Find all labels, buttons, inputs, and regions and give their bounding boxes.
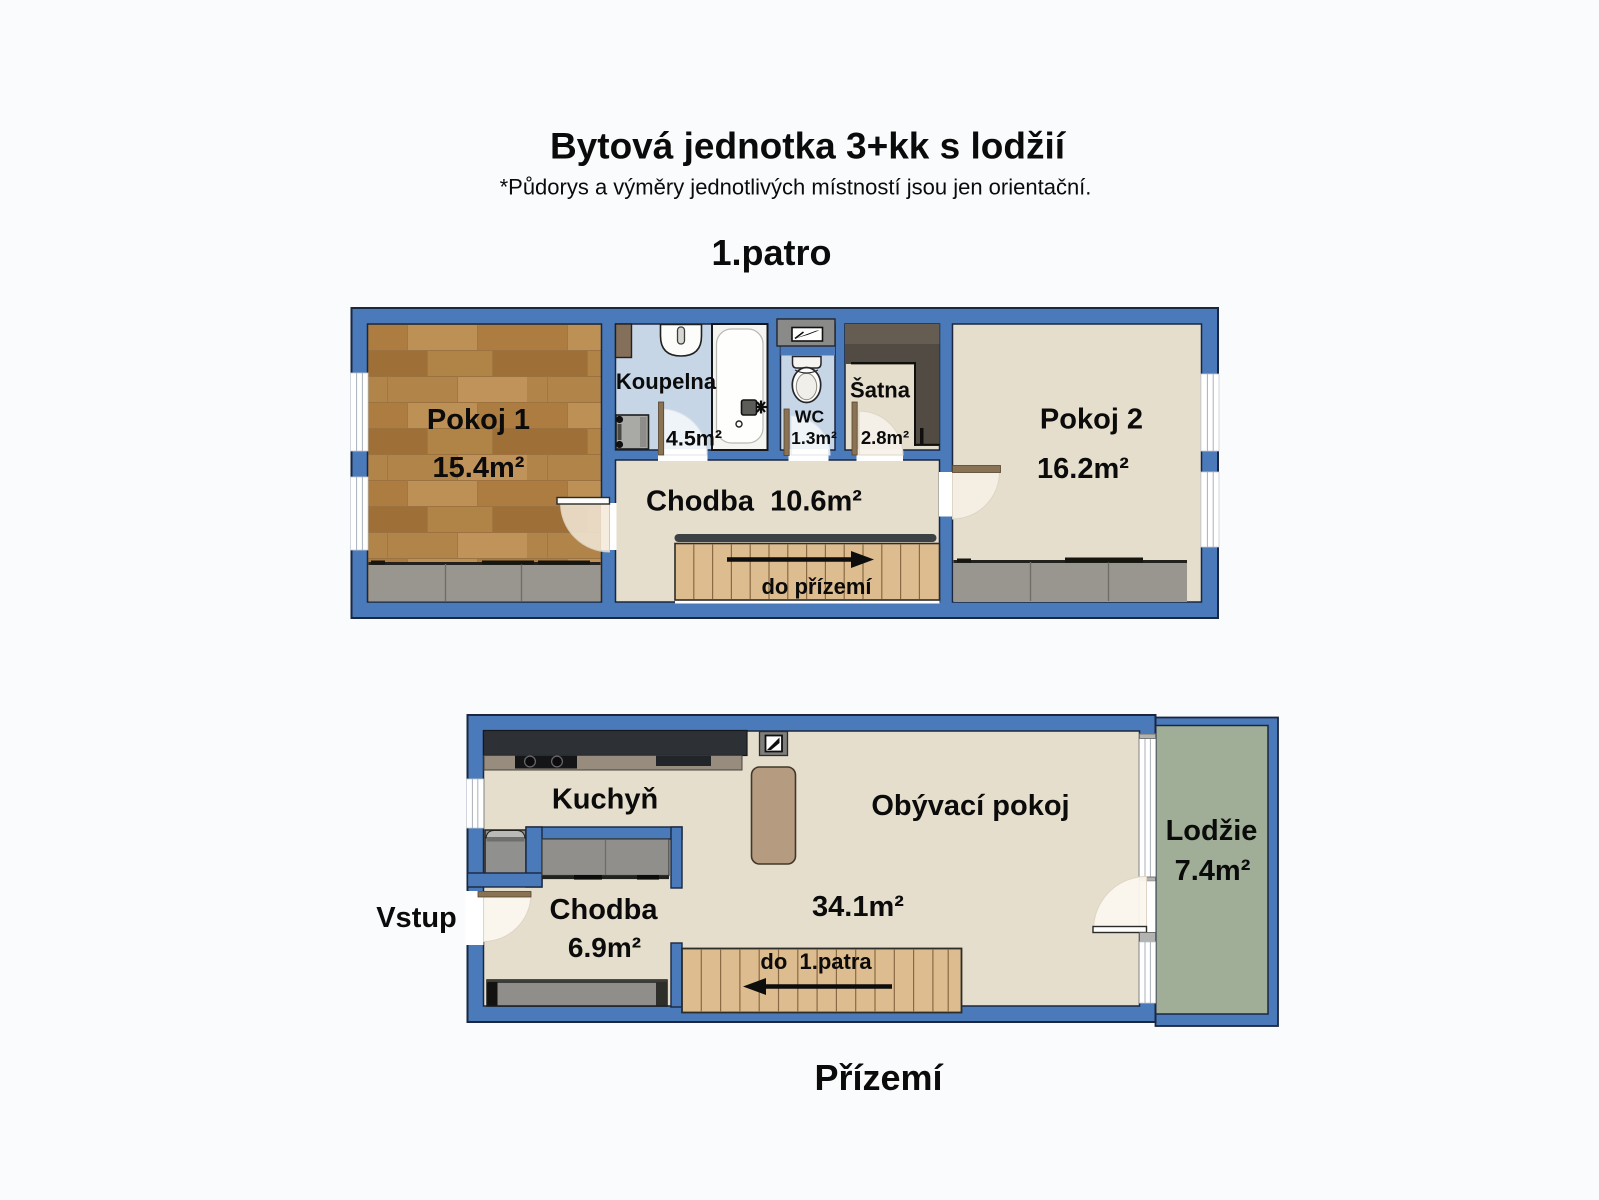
svg-text:Obývací pokoj: Obývací pokoj bbox=[871, 790, 1069, 822]
svg-text:4.5m²: 4.5m² bbox=[666, 427, 722, 451]
svg-text:Vstup: Vstup bbox=[376, 902, 457, 934]
svg-text:1.3m²: 1.3m² bbox=[791, 428, 837, 448]
svg-text:Bytová jednotka 3+kk s lodžií: Bytová jednotka 3+kk s lodžií bbox=[550, 126, 1067, 167]
svg-text:2.8m²: 2.8m² bbox=[861, 427, 909, 448]
svg-text:7.4m²: 7.4m² bbox=[1175, 855, 1251, 887]
svg-text:Přízemí: Přízemí bbox=[814, 1057, 943, 1098]
svg-text:16.2m²: 16.2m² bbox=[1037, 453, 1129, 485]
svg-text:Pokoj 1: Pokoj 1 bbox=[427, 404, 530, 436]
svg-text:Chodba: Chodba bbox=[550, 894, 659, 926]
svg-text:15.4m²: 15.4m² bbox=[433, 452, 525, 484]
svg-text:do přízemí: do přízemí bbox=[761, 574, 872, 599]
svg-text:WC: WC bbox=[795, 407, 825, 427]
svg-text:Kuchyň: Kuchyň bbox=[552, 784, 658, 816]
svg-text:6.9m²: 6.9m² bbox=[568, 932, 641, 963]
svg-text:do 1.patra: do 1.patra bbox=[760, 949, 872, 974]
svg-text:Pokoj 2: Pokoj 2 bbox=[1040, 404, 1143, 436]
svg-text:Lodžie: Lodžie bbox=[1166, 815, 1258, 847]
svg-text:34.1m²: 34.1m² bbox=[812, 891, 904, 923]
svg-text:1.patro: 1.patro bbox=[711, 232, 831, 273]
svg-text:Chodba 10.6m²: Chodba 10.6m² bbox=[646, 486, 862, 518]
svg-text:*Půdorys a výměry jednotlivých: *Půdorys a výměry jednotlivých místností… bbox=[500, 174, 1092, 199]
svg-text:Šatna: Šatna bbox=[850, 378, 911, 403]
svg-text:Koupelna: Koupelna bbox=[616, 369, 717, 394]
